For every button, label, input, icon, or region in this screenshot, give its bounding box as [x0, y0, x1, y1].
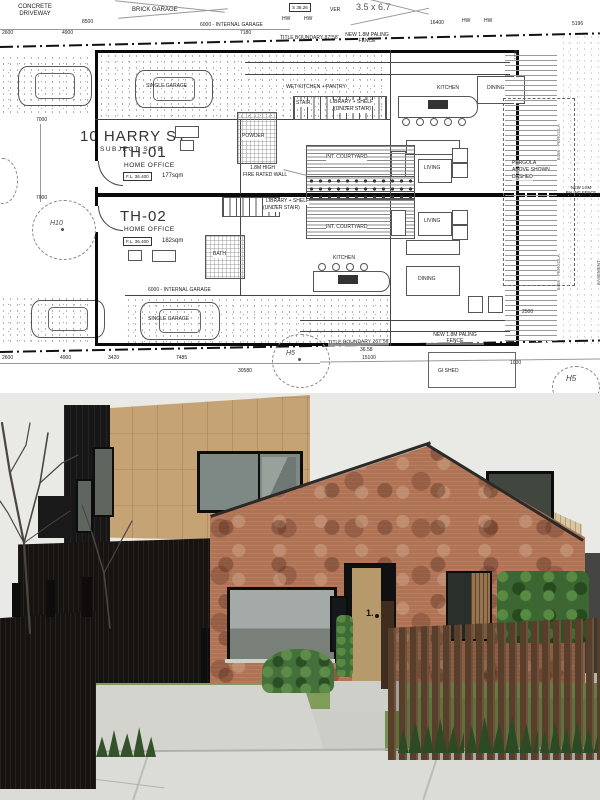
counter-line — [300, 320, 510, 321]
bare-tree-branches — [0, 393, 160, 643]
dim-2600b: 2600 — [2, 356, 13, 362]
stool — [360, 263, 368, 271]
car-cabin — [35, 73, 75, 99]
door-swing — [98, 161, 123, 186]
screenshot-canvas: CONCRETE DRIVEWAY BRICK GARAGE 3.5 x 6.7… — [0, 0, 600, 800]
label-fence-bottom: NEW 1.8M PALING FENCE — [426, 333, 484, 345]
armchair — [391, 210, 406, 236]
courtyard-planting — [306, 176, 415, 199]
car-symbol — [31, 300, 105, 338]
cooktop-symbol — [428, 100, 448, 109]
wall-segment — [95, 50, 98, 346]
unit-use-th02: HOME OFFICE — [124, 226, 175, 233]
stool — [430, 118, 438, 126]
floor-level-th02: F.L. 36.400 — [123, 237, 152, 246]
label-library-1: LIBRARY + SHELF — [266, 199, 309, 205]
tree-small — [0, 158, 18, 204]
outdoor-chair — [488, 296, 503, 313]
stool — [444, 118, 452, 126]
dim-7180: 7180 — [240, 31, 251, 37]
armchair — [452, 225, 468, 240]
counter-line — [245, 62, 510, 63]
dim-pergola: 6455 - PERGOLA — [556, 124, 561, 160]
armchair — [452, 163, 468, 178]
exterior-render: 1. — [0, 393, 600, 800]
dim-4900b: 4900 — [60, 356, 71, 362]
label-pergola-3: DASHED — [512, 175, 533, 181]
dim-30580: 30580 — [238, 369, 252, 375]
tree-h10 — [32, 200, 96, 260]
dim-3420: 3420 — [108, 356, 119, 362]
wall-segment — [95, 50, 519, 53]
outdoor-chair — [468, 296, 483, 313]
dim-pergola: 6455 - PERGOLA — [556, 254, 561, 290]
chair-symbol — [128, 250, 142, 261]
label-concrete-driveway: CONCRETE DRIVEWAY — [10, 4, 60, 18]
floor-level-th01: F.L. 36.400 — [123, 172, 152, 181]
stool — [318, 263, 326, 271]
unit-use-th01: HOME OFFICE — [124, 162, 175, 169]
label-firewall-2: FIRE RATED WALL — [243, 173, 287, 179]
desk-symbol — [152, 250, 176, 262]
label-garage-size: 3.5 x 6.7 — [356, 2, 391, 12]
stool — [346, 263, 354, 271]
hw-marker: HW — [304, 17, 312, 23]
stool — [402, 118, 410, 126]
dim-5196: 5196 — [572, 22, 583, 28]
label-h5: H5 — [566, 374, 576, 383]
dim-2600: 2600 — [2, 31, 13, 37]
door-opening — [93, 161, 98, 187]
tree-trunk — [298, 358, 301, 361]
label-dining-th02: DINING — [418, 277, 436, 283]
dim-4900: 4900 — [62, 31, 73, 37]
label-h10: H10 — [50, 220, 63, 228]
label-dining-th01: DINING — [487, 86, 505, 92]
stool — [332, 263, 340, 271]
label-gi-shed: GI SHED — [438, 369, 459, 375]
vine-by-door — [336, 615, 353, 677]
sofa-th02 — [406, 240, 460, 255]
label-single-garage-th02: SINGLE GARAGE — [148, 317, 189, 323]
label-courtyard-th02: INT. COURTYARD — [326, 225, 367, 231]
dim-7000: 7000 — [36, 118, 47, 124]
dim-7485: 7485 — [176, 356, 187, 362]
label-boundary-top: TITLE BOUNDARY 87°58' — [280, 36, 339, 42]
label-courtyard-th01: INT. COURTYARD — [326, 155, 367, 161]
bushes — [262, 649, 334, 693]
unit-id-th01: TH-01 — [120, 144, 167, 161]
label-boundary-bottom: TITLE BOUNDARY 267°58' — [328, 339, 389, 346]
label-powder: POWDER — [242, 134, 265, 140]
dim-16400: 16400 — [430, 21, 444, 27]
label-brick-garage: BRICK GARAGE — [132, 7, 178, 14]
label-pergola-1: PERGOLA — [512, 161, 536, 167]
label-boundary-length: 36.58 — [360, 348, 373, 354]
cooktop-symbol — [338, 275, 358, 284]
label-library-1: LIBRARY + SHELF — [330, 100, 373, 106]
label-wet-kitchen: WET KITCHEN + PANTRY — [286, 85, 346, 91]
area-th02: 182sqm — [162, 238, 183, 245]
dim-7000: 7000 — [36, 196, 47, 202]
door-number: 1. — [366, 608, 374, 618]
label-firewall-1: 1.8M HIGH — [250, 166, 275, 172]
dim-15100: 15100 — [362, 356, 376, 362]
label-kitchen-th01: KITCHEN — [437, 86, 459, 92]
label-bath: BATH — [213, 252, 226, 258]
area-th01: 177sqm — [162, 173, 183, 180]
counter-line — [245, 74, 510, 75]
hw-marker: HW — [282, 17, 290, 23]
hw-marker: HW — [484, 19, 492, 25]
stool — [416, 118, 424, 126]
label-library-2: (UNDER STAIR) — [263, 206, 300, 212]
dim-internal-garage: 6000 - INTERNAL GARAGE — [200, 23, 263, 29]
label-library-2: (UNDER STAIR) — [334, 107, 371, 113]
armchair — [452, 148, 468, 163]
stool — [458, 118, 466, 126]
desk-symbol — [175, 126, 199, 138]
dim-1730: 1730 — [513, 50, 518, 60]
label-living-th02: LIVING — [424, 219, 440, 225]
wall-segment — [125, 295, 390, 296]
label-stair: STAIR — [296, 101, 310, 107]
dim-line — [40, 124, 41, 202]
site-floor-plan: CONCRETE DRIVEWAY BRICK GARAGE 3.5 x 6.7… — [0, 0, 600, 393]
door-handle — [375, 614, 379, 618]
label-easement: EASEMENT — [596, 260, 600, 285]
unit-id-th02: TH-02 — [120, 208, 167, 225]
label-h5: H5 — [286, 350, 295, 358]
dim-internal-garage-th02: 6000 - INTERNAL GARAGE — [148, 288, 211, 294]
label-kitchen-th02: KITCHEN — [333, 256, 355, 262]
car-cabin — [48, 307, 88, 331]
tree-trunk — [61, 228, 64, 231]
armchair — [452, 210, 468, 225]
label-living-th01: LIVING — [424, 166, 440, 172]
car-symbol — [18, 66, 92, 106]
label-fence-top: NEW 1.8M PALING FENCE — [338, 33, 396, 45]
label-ver: VER — [330, 8, 340, 14]
label-pergola-2: ABOVE SHOWN — [512, 168, 550, 174]
spot-level-box: S 38.26 — [289, 3, 311, 12]
front-door: 1. — [352, 568, 381, 688]
dim-8500: 8500 — [82, 20, 93, 26]
dim-line — [0, 363, 320, 364]
dim-2500: 2500 — [522, 310, 533, 316]
counter-line — [300, 331, 510, 332]
chair-symbol — [180, 140, 194, 151]
label-single-garage-th01: SINGLE GARAGE — [146, 84, 187, 90]
label-fence-right: NEW 1.8M PALING FENCE — [564, 186, 598, 196]
hw-marker: HW — [462, 19, 470, 25]
